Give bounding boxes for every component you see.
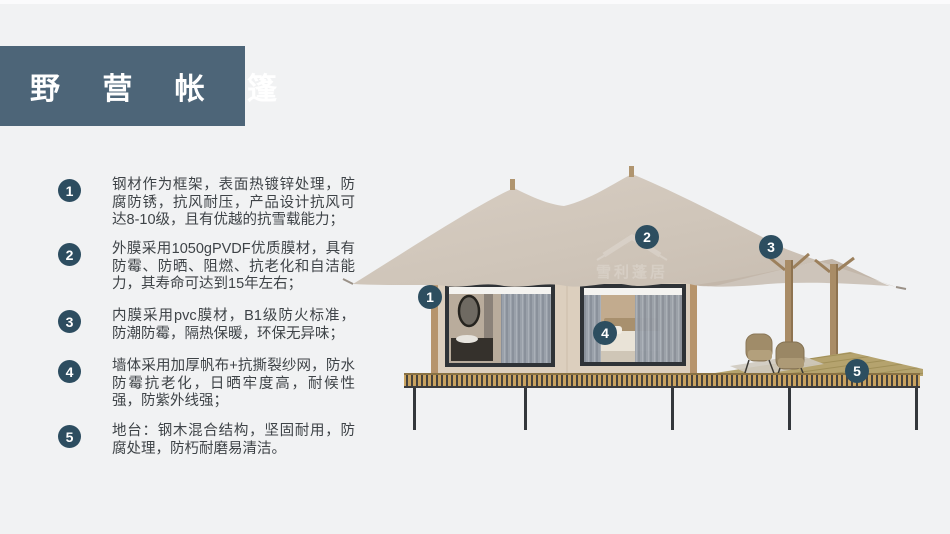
peak-pole-left — [510, 179, 515, 190]
deck-edge-top — [404, 373, 920, 375]
mirror — [459, 296, 479, 326]
feature-text: 外膜采用1050gPVDF优质膜材，具有防霉、防晒、阻燃、抗老化和自洁能力，其寿… — [112, 241, 355, 294]
feature-number-badge: 2 — [58, 243, 81, 266]
cabin — [431, 276, 697, 378]
tent-illustration: 雪利蓬居 — [338, 158, 948, 448]
tip-spike-right — [896, 287, 906, 289]
tip-spike-left — [343, 279, 353, 284]
window-bathroom — [445, 283, 555, 367]
feature-number-badge: 3 — [58, 310, 81, 333]
page-title: 野 营 帐 篷 — [0, 46, 245, 126]
marker-number: 4 — [601, 325, 609, 341]
marker-4: 4 — [593, 321, 617, 345]
feature-number-badge: 4 — [58, 360, 81, 383]
page-title-text: 野 营 帐 篷 — [30, 64, 294, 108]
canopy: 雪利蓬居 — [343, 166, 906, 289]
feature-item-1: 1 钢材作为框架，表面热镀锌处理，防腐防锈，抗风耐压，产品设计抗风可达8-10级… — [58, 177, 358, 230]
valance — [584, 288, 682, 295]
marker-2: 2 — [635, 225, 659, 249]
slide-canvas: 野 营 帐 篷 1 钢材作为框架，表面热镀锌处理，防腐防锈，抗风耐压，产品设计抗… — [0, 0, 950, 534]
curtain — [501, 294, 551, 363]
sink — [456, 335, 478, 343]
feature-item-5: 5 地台：钢木混合结构，坚固耐用，防腐处理，防朽耐磨易清洁。 — [58, 423, 358, 458]
watermark-text: 雪利蓬居 — [596, 263, 668, 281]
feature-text: 墙体采用加厚帆布+抗撕裂纱网，防水防霉抗老化，日晒牢度高，耐候性强，防紫外线强； — [112, 358, 355, 411]
feature-item-3: 3 内膜采用pvc膜材，B1级防火标准，防潮防霉，隔热保暖，环保无异味； — [58, 308, 358, 343]
feature-number-badge: 1 — [58, 179, 81, 202]
valance — [449, 287, 551, 294]
marker-number: 5 — [853, 363, 861, 379]
feature-text: 钢材作为框架，表面热镀锌处理，防腐防锈，抗风耐压，产品设计抗风可达8-10级，且… — [112, 177, 355, 230]
deck-edge-bottom — [404, 386, 920, 388]
feature-text: 内膜采用pvc膜材，B1级防火标准，防潮防霉，隔热保暖，环保无异味； — [112, 308, 355, 343]
peak-pole-center — [629, 166, 634, 177]
marker-1: 1 — [418, 285, 442, 309]
cabin-corner-post-right — [690, 276, 697, 378]
window-bedroom — [580, 284, 686, 366]
deck-platform — [404, 373, 920, 430]
marker-number: 3 — [767, 239, 775, 255]
curtain — [635, 295, 682, 362]
top-divider — [0, 0, 950, 4]
feature-text: 地台：钢木混合结构，坚固耐用，防腐处理，防朽耐磨易清洁。 — [112, 423, 355, 458]
deck-edge-slats — [404, 375, 920, 386]
tent-diagram: 雪利蓬居 — [338, 158, 948, 448]
marker-number: 1 — [426, 289, 434, 305]
marker-3: 3 — [759, 235, 783, 259]
deck-legs — [413, 388, 918, 430]
marker-number: 2 — [643, 229, 651, 245]
feature-number-badge: 5 — [58, 425, 81, 448]
feature-item-4: 4 墙体采用加厚帆布+抗撕裂纱网，防水防霉抗老化，日晒牢度高，耐候性强，防紫外线… — [58, 358, 358, 411]
feature-item-2: 2 外膜采用1050gPVDF优质膜材，具有防霉、防晒、阻燃、抗老化和自洁能力，… — [58, 241, 358, 294]
marker-5: 5 — [845, 359, 869, 383]
